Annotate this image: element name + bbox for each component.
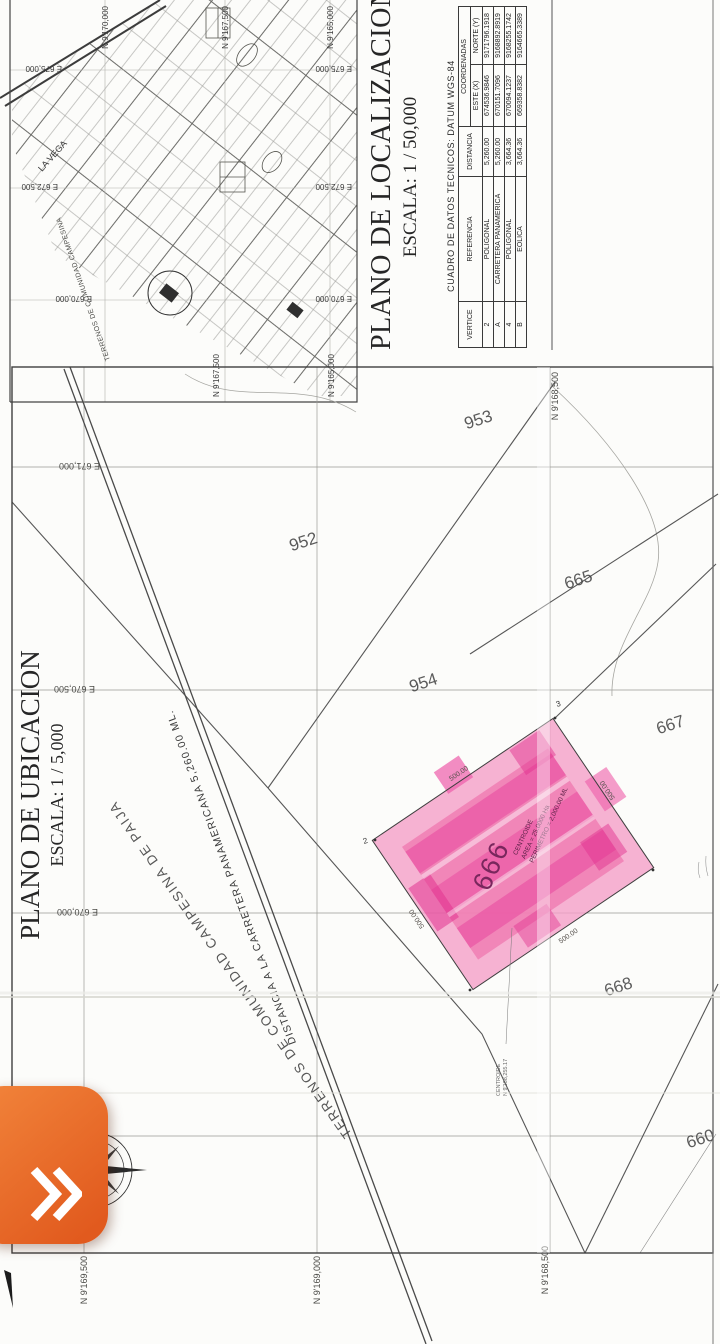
inset-north-label: N 9'165,000 <box>327 354 336 397</box>
table-cell: 2 <box>483 302 494 348</box>
inset-north-label: N 9'165,000 <box>326 5 335 48</box>
centroid-note: CENTROIDE N 9'168,255.17 <box>496 1059 509 1096</box>
table-cell: 5,260.00 <box>494 127 505 177</box>
inset-east-label: E 670,000 <box>315 294 352 303</box>
north-label: N 9'168,500 <box>550 372 560 420</box>
table-row: 4 POLIGONAL 3,664.36 670094.1237 9168255… <box>505 7 516 348</box>
table-cell: EOLICA <box>516 177 527 302</box>
col-header-este: ESTE (X) <box>471 65 483 127</box>
ubication-plan-scale: ESCALA: 1 / 5,000 <box>47 638 68 952</box>
col-header-vertice: VERTICE <box>459 302 483 348</box>
ubication-plan-title-block: PLANO DE UBICACION ESCALA: 1 / 5,000 <box>15 638 68 952</box>
table-cell: CARRETERA PANAMERICA <box>494 177 505 302</box>
east-label: E 671,000 <box>59 461 100 471</box>
table-cell: 3,664.36 <box>516 127 527 177</box>
table-cell: 669358.8382 <box>516 65 527 127</box>
col-header-norte: NORTE (Y) <box>471 7 483 65</box>
centroid-note-line2: N 9'168,255.17 <box>503 1059 509 1096</box>
table-cell: 4 <box>505 302 516 348</box>
table-cell: A <box>494 302 505 348</box>
table-title: CUADRO DE DATOS TECNICOS: DATUM WGS-84 <box>446 4 456 348</box>
table-cell: 670151.7096 <box>494 65 505 127</box>
map-drawing: N 9'170,000 N 9'167,500 N 9'165,000 N 9'… <box>0 0 720 1344</box>
scanned-plan-viewer: N 9'170,000 N 9'167,500 N 9'165,000 N 9'… <box>0 0 720 1344</box>
location-plan-title: PLANO DE LOCALIZACION <box>366 4 398 350</box>
table-cell: POLIGONAL <box>483 177 494 302</box>
table-row: 2 POLIGONAL 5,260.00 674536.9846 9171796… <box>483 7 494 348</box>
plan-sheet: N 9'170,000 N 9'167,500 N 9'165,000 N 9'… <box>0 0 720 1344</box>
table-cell: POLIGONAL <box>505 177 516 302</box>
table-cell: B <box>516 302 527 348</box>
table-cell: 9171796.1918 <box>483 7 494 65</box>
chevrons-right-icon <box>30 1166 82 1222</box>
table-cell: 3,664.36 <box>505 127 516 177</box>
table-cell: 9164665.3389 <box>516 7 527 65</box>
north-label: N 9'169,000 <box>312 1256 322 1304</box>
col-header-coordenadas: COORDENADAS <box>459 7 471 127</box>
expand-drawer-button[interactable] <box>0 1086 108 1244</box>
inset-north-label: N 9'167,500 <box>221 5 230 48</box>
table-header-row: VERTICE REFERENCIA DISTANCIA COORDENADAS <box>459 7 471 348</box>
location-plan-title-block: PLANO DE LOCALIZACION ESCALA: 1 / 50,000 <box>366 4 422 350</box>
table-cell: 670094.1237 <box>505 65 516 127</box>
inset-east-label: E 672,500 <box>315 182 352 191</box>
table-cell: 9168892.8919 <box>494 7 505 65</box>
ubication-plan-title: PLANO DE UBICACION <box>15 638 46 952</box>
centroid-note-line1: CENTROIDE <box>496 1063 502 1096</box>
col-header-referencia: REFERENCIA <box>459 177 483 302</box>
location-plan-scale: ESCALA: 1 / 50,000 <box>400 4 422 350</box>
inset-north-label: N 9'167,500 <box>212 354 221 397</box>
inset-east-label: E 675,000 <box>315 64 352 73</box>
inset-east-label: E 672,500 <box>21 182 58 191</box>
table-cell: 5,260.00 <box>483 127 494 177</box>
table-cell: 674536.9846 <box>483 65 494 127</box>
table-cell: 9168255.1742 <box>505 7 516 65</box>
north-label: N 9'169,500 <box>79 1256 89 1304</box>
col-header-distancia: DISTANCIA <box>459 127 483 177</box>
inset-east-label: E 675,000 <box>25 64 62 73</box>
table-row: A CARRETERA PANAMERICA 5,260.00 670151.7… <box>494 7 505 348</box>
table-row: B EOLICA 3,664.36 669358.8382 9164665.33… <box>516 7 527 348</box>
inset-north-label: N 9'170,000 <box>101 5 110 48</box>
technical-data-table: CUADRO DE DATOS TECNICOS: DATUM WGS-84 V… <box>446 4 527 348</box>
